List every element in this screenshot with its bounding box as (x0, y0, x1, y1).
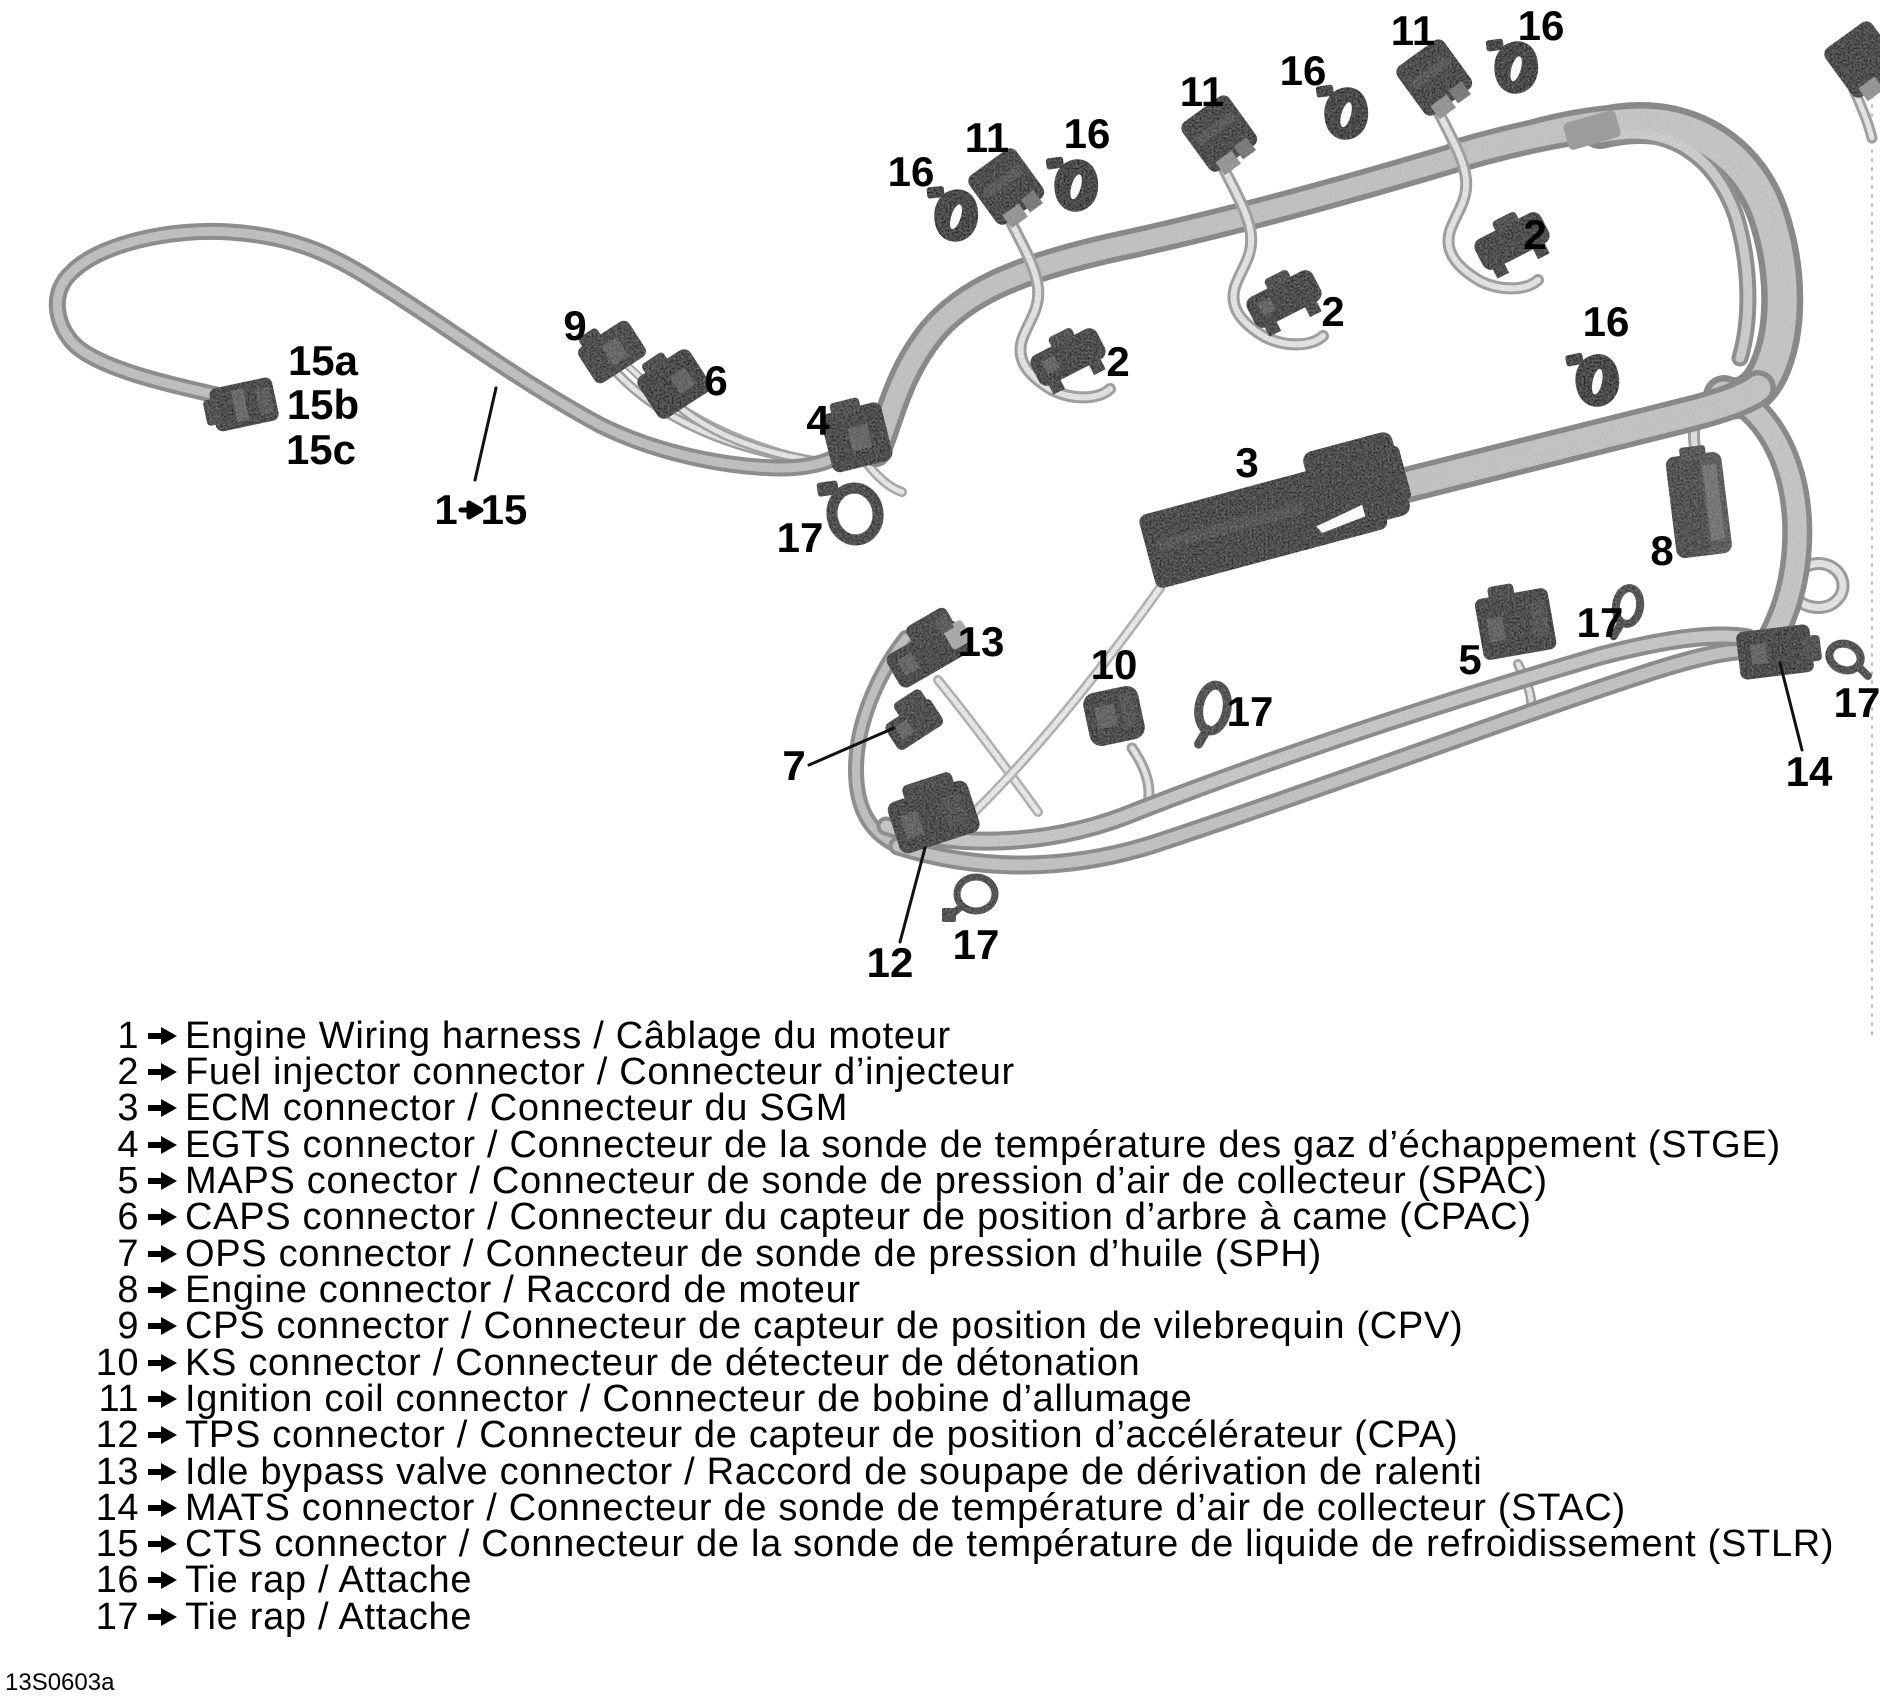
svg-text:9: 9 (563, 302, 586, 349)
svg-text:17: 17 (1227, 688, 1274, 735)
svg-text:2: 2 (1106, 338, 1129, 385)
svg-text:13: 13 (958, 618, 1005, 665)
svg-text:16: 16 (1518, 2, 1565, 49)
svg-text:16: 16 (1064, 110, 1111, 157)
svg-text:4: 4 (806, 397, 830, 444)
svg-text:8: 8 (1650, 527, 1673, 574)
svg-text:15a: 15a (288, 337, 359, 384)
svg-text:10: 10 (1091, 641, 1138, 688)
svg-text:17: 17 (777, 514, 824, 561)
svg-text:11: 11 (1391, 7, 1435, 54)
svg-text:15b: 15b (287, 381, 359, 428)
svg-text:6: 6 (704, 357, 727, 404)
svg-text:2: 2 (1321, 288, 1344, 335)
svg-text:11: 11 (965, 114, 1009, 161)
svg-text:1: 1 (434, 486, 457, 533)
svg-text:15: 15 (481, 486, 528, 533)
svg-text:3: 3 (1235, 439, 1258, 486)
svg-text:5: 5 (1458, 636, 1481, 683)
svg-text:17: 17 (1834, 679, 1880, 726)
svg-text:11: 11 (1180, 68, 1224, 115)
svg-text:17: 17 (1577, 599, 1624, 646)
svg-text:7: 7 (782, 742, 805, 789)
svg-text:17: 17 (953, 921, 1000, 968)
svg-text:14: 14 (1786, 748, 1833, 795)
svg-text:16: 16 (888, 148, 935, 195)
svg-text:12: 12 (867, 939, 914, 986)
svg-text:16: 16 (1280, 47, 1327, 94)
svg-text:16: 16 (1583, 298, 1630, 345)
svg-text:15c: 15c (286, 426, 356, 473)
svg-text:2: 2 (1523, 211, 1546, 258)
